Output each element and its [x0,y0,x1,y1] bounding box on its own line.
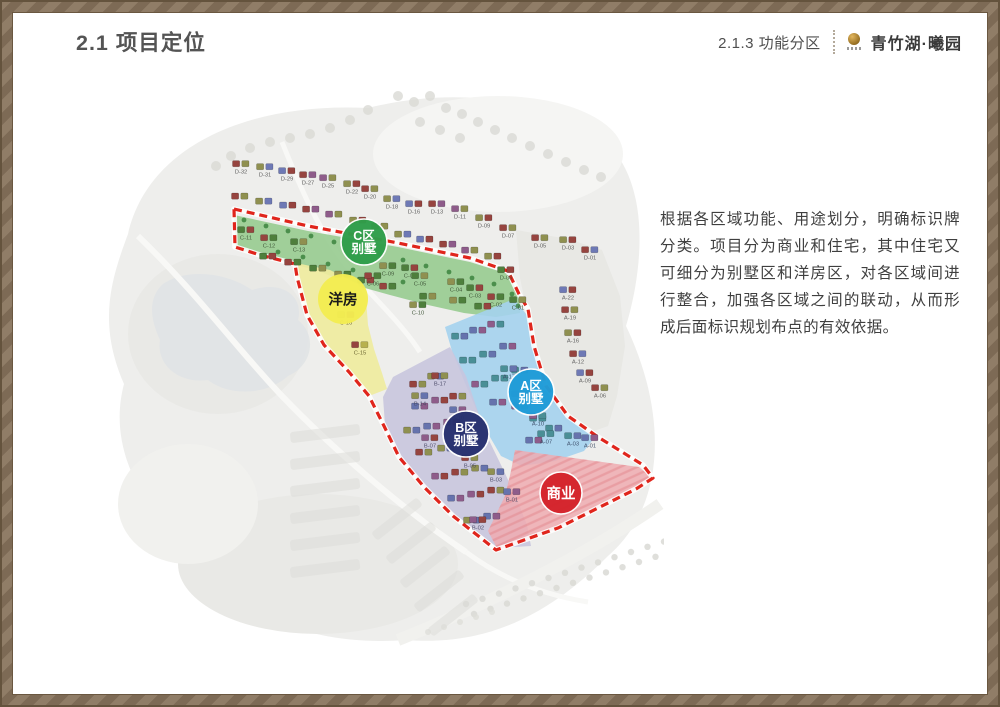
zone-badge-a-villa: A区别墅 [508,369,554,415]
svg-text:D-05: D-05 [534,244,547,250]
svg-text:A-19: A-19 [564,316,576,322]
svg-text:D-18: D-18 [386,205,399,211]
svg-text:C-10: C-10 [412,311,425,317]
svg-text:A-01: A-01 [584,444,596,450]
header-right: 2.1.3 功能分区 青竹湖·曦园 [718,30,962,54]
svg-text:别墅: 别墅 [452,433,479,448]
svg-text:C-04: C-04 [450,288,463,294]
svg-text:D-11: D-11 [454,215,466,221]
svg-text:A-03: A-03 [567,442,579,448]
zone-badge-b-villa: B区别墅 [443,411,489,457]
svg-text:商业: 商业 [547,485,576,503]
svg-text:A-06: A-06 [594,394,606,400]
zone-badge-shangye: 商业 [540,472,582,514]
svg-text:B-03: B-03 [490,478,502,484]
svg-text:A-07: A-07 [540,440,552,446]
zone-badge-yangfang: 洋房 [318,274,368,324]
svg-text:D-22: D-22 [346,190,359,196]
svg-text:B-14: B-14 [414,402,427,408]
svg-text:B-02: B-02 [472,526,484,532]
svg-text:A-12: A-12 [572,360,584,366]
svg-text:A-10: A-10 [532,422,544,428]
svg-text:B-17: B-17 [434,382,446,388]
svg-text:C-15: C-15 [354,351,367,357]
svg-text:D-27: D-27 [302,181,315,187]
svg-text:A-09: A-09 [579,379,591,385]
svg-text:D-03: D-03 [562,246,575,252]
gold-sphere-icon [848,33,860,45]
svg-text:D-32: D-32 [235,170,248,176]
dotted-divider [833,30,835,54]
svg-text:A区: A区 [520,379,542,393]
svg-text:C-05: C-05 [414,282,427,288]
svg-text:A-22: A-22 [562,296,574,302]
svg-text:B-05: B-05 [464,464,476,470]
svg-text:D-29: D-29 [281,177,294,183]
svg-text:D-13: D-13 [431,210,444,216]
svg-text:A-16: A-16 [567,339,579,345]
svg-text:D-25: D-25 [322,184,335,190]
svg-text:洋房: 洋房 [329,291,358,309]
logo-subtext [847,47,861,50]
svg-text:D-09: D-09 [478,224,491,230]
slide: 2.1 项目定位 2.1.3 功能分区 青竹湖·曦园 [0,0,1000,707]
terrain-layer [109,96,660,641]
zone-badge-c-villa: C区别墅 [341,219,387,265]
svg-text:C-02: C-02 [490,303,503,309]
svg-text:D-06: D-06 [500,276,513,282]
svg-text:C-03: C-03 [469,294,482,300]
svg-text:C-09: C-09 [382,272,395,278]
svg-text:B区: B区 [455,421,477,435]
svg-text:C-11: C-11 [240,236,252,242]
svg-text:D-07: D-07 [502,234,515,240]
svg-text:C区: C区 [353,229,375,243]
svg-text:B-01: B-01 [506,498,518,504]
section-label: 2.1.3 功能分区 [718,32,821,53]
description-text: 根据各区域功能、用途划分，明确标识牌分类。项目分为商业和住宅，其中住宅又可细分为… [660,206,960,341]
site-plan-map: D-32D-31D-29D-27D-25D-22D-20D-18D-16D-13… [68,84,664,668]
brand-name: 青竹湖·曦园 [871,30,962,54]
svg-text:D-31: D-31 [259,173,272,179]
svg-text:B-07: B-07 [424,444,436,450]
svg-text:D-01: D-01 [584,256,597,262]
svg-text:C-01: C-01 [512,306,525,312]
svg-text:别墅: 别墅 [350,241,377,256]
svg-text:D-20: D-20 [364,195,377,201]
svg-text:别墅: 别墅 [517,391,544,406]
page-title: 2.1 项目定位 [76,26,206,57]
svg-text:C-12: C-12 [263,244,276,250]
svg-text:C-13: C-13 [293,248,306,254]
svg-text:C-06: C-06 [367,282,380,288]
svg-text:D-16: D-16 [408,210,421,216]
brand-logo-icon [847,33,861,50]
